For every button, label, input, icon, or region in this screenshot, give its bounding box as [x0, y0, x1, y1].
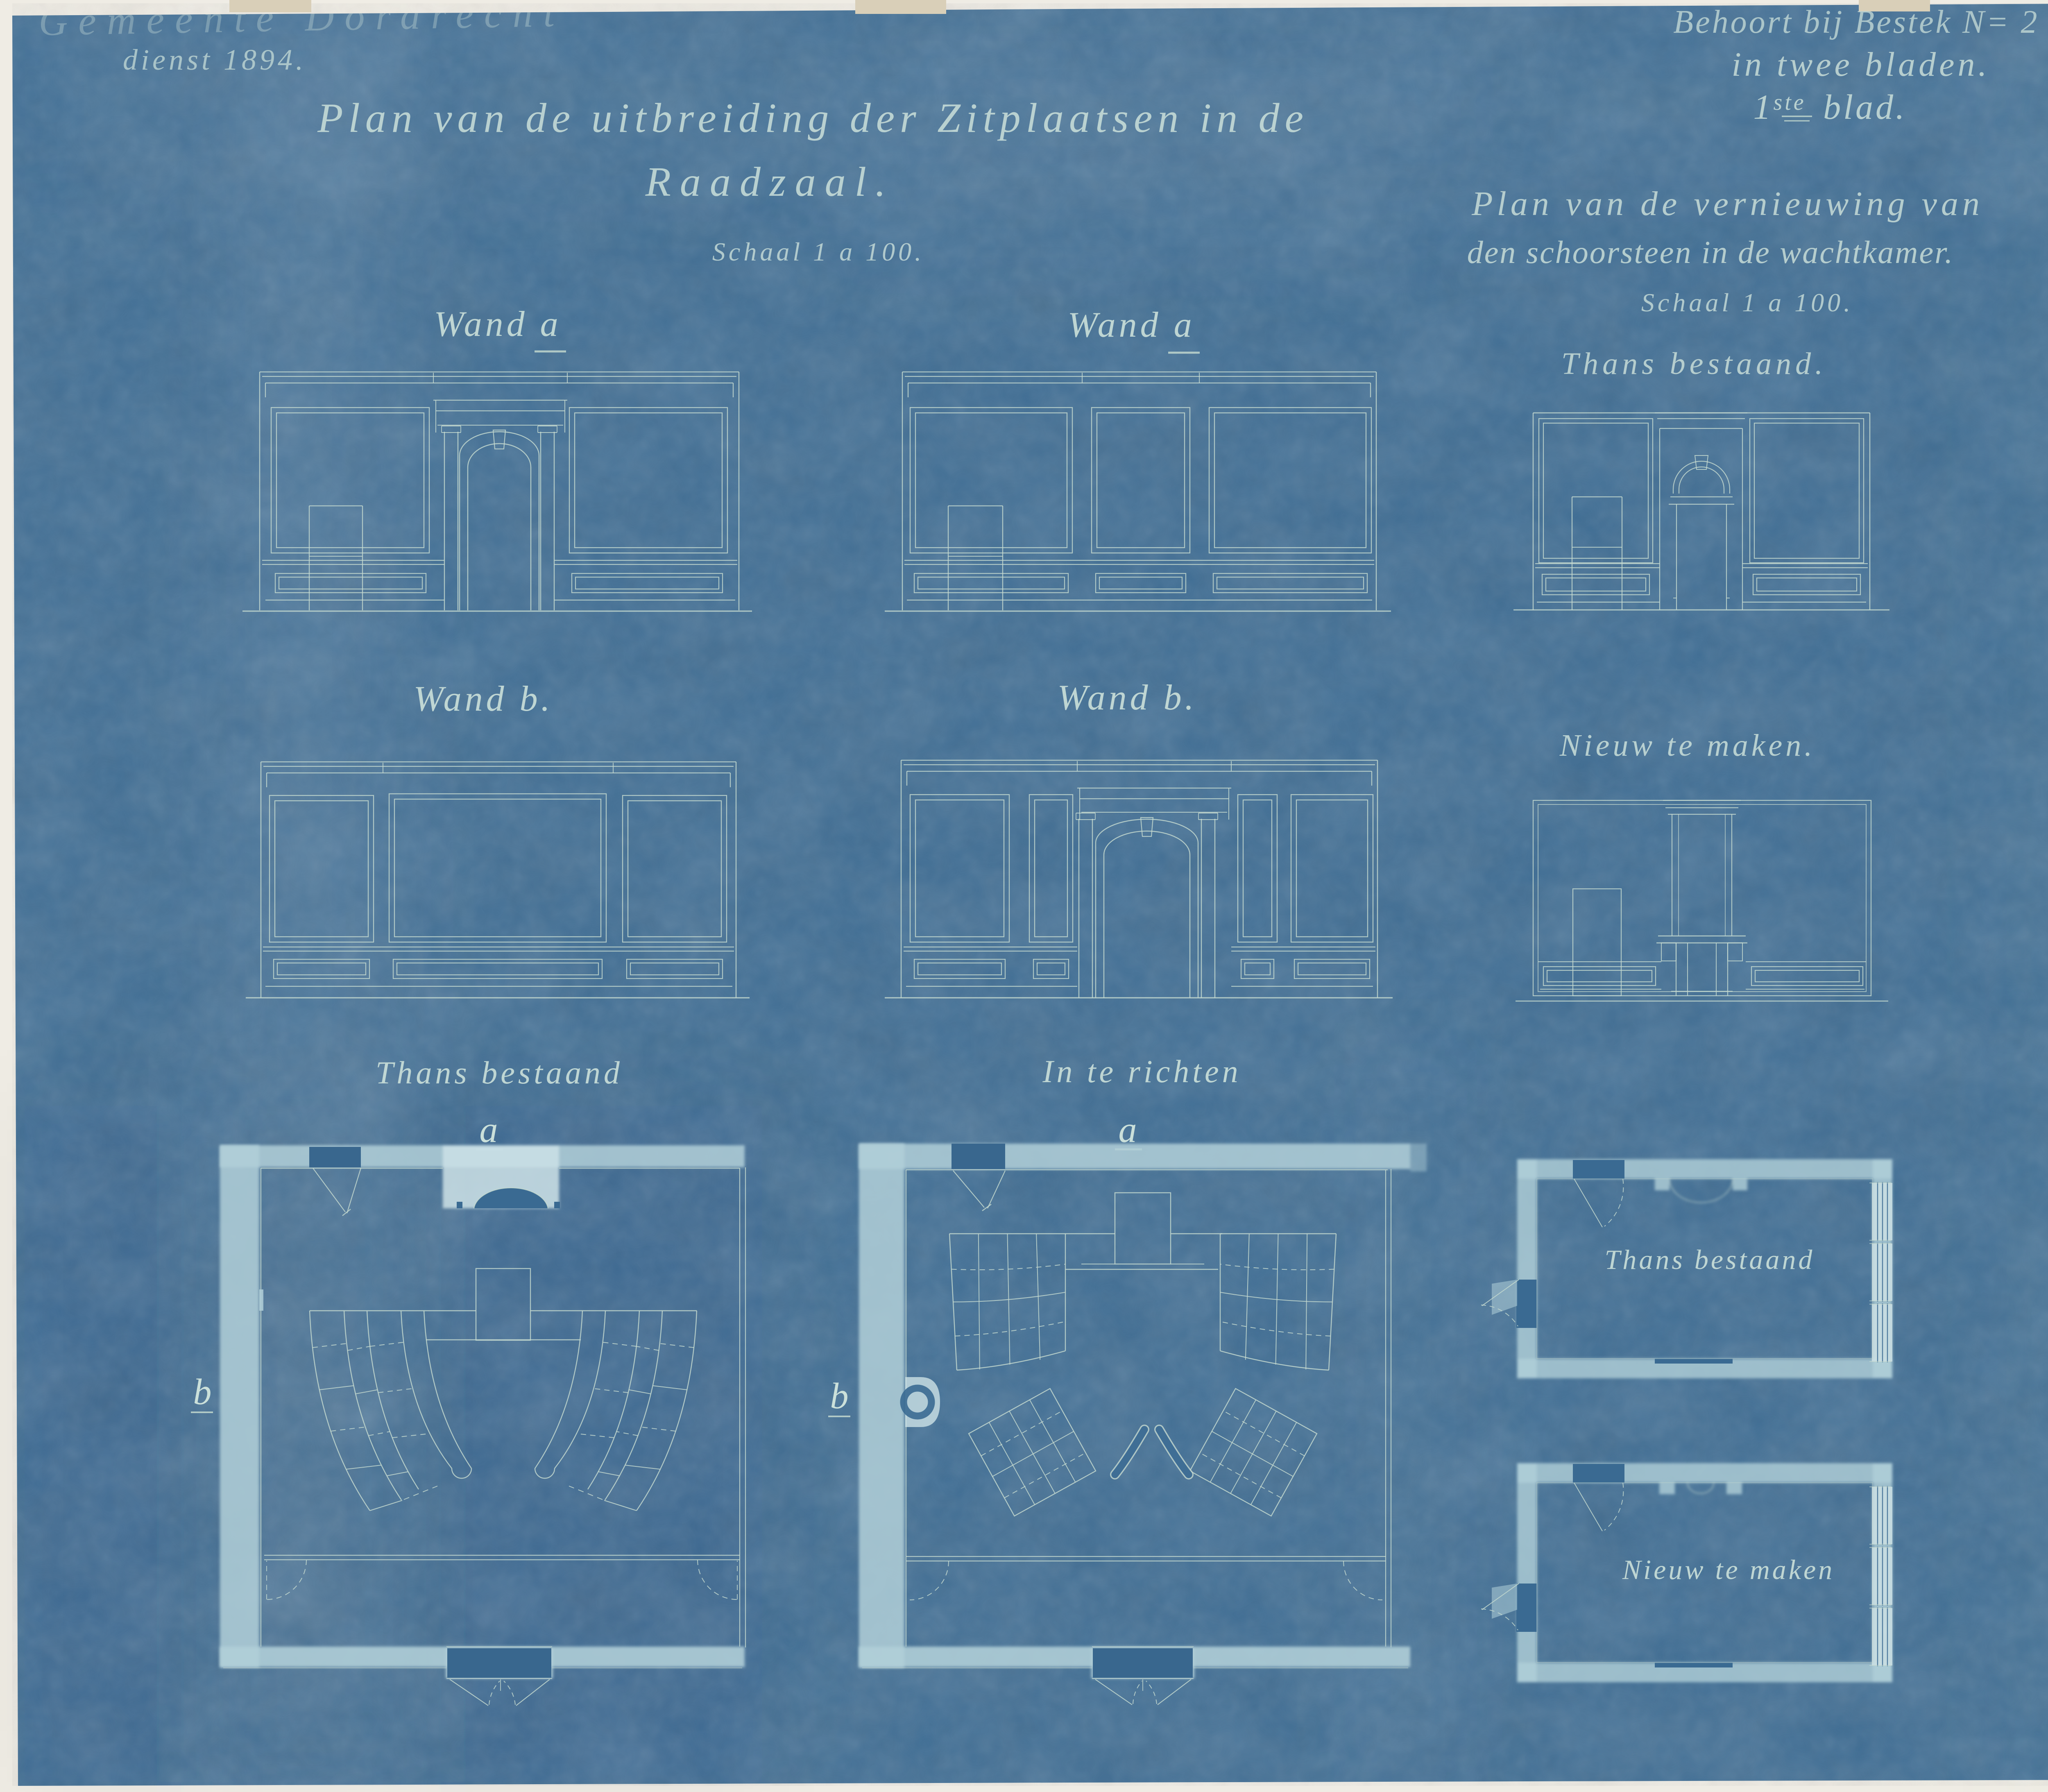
- svg-text:a: a: [480, 1110, 498, 1150]
- svg-text:Raadzaal.: Raadzaal.: [645, 159, 895, 205]
- svg-text:Thans bestaand: Thans bestaand: [1605, 1244, 1815, 1275]
- svg-text:b: b: [830, 1376, 849, 1416]
- svg-text:Schaal 1 a 100.: Schaal 1 a 100.: [1641, 288, 1853, 317]
- svg-text:Nieuw te maken.: Nieuw te maken.: [1559, 728, 1815, 763]
- svg-text:Thans bestaand: Thans bestaand: [376, 1055, 623, 1090]
- svg-text:den schoorsteen in de wachtkam: den schoorsteen in de wachtkamer.: [1467, 234, 1954, 270]
- svg-text:Nieuw te maken: Nieuw te maken: [1622, 1554, 1835, 1585]
- svg-text:b: b: [193, 1372, 212, 1412]
- svg-text:in twee bladen.: in twee bladen.: [1732, 45, 1990, 84]
- svg-text:Plan van de uitbreiding der Zi: Plan van de uitbreiding der Zitplaatsen …: [317, 95, 1309, 141]
- svg-text:Schaal 1 a 100.: Schaal 1 a 100.: [712, 237, 924, 266]
- svg-text:Wand b.: Wand b.: [1057, 678, 1197, 718]
- svg-text:dienst 1894.: dienst 1894.: [123, 43, 306, 76]
- svg-text:Behoort bij Bestek N= 2 79/2.: Behoort bij Bestek N= 2 79/2.: [1673, 4, 2048, 40]
- svg-text:In te richten: In te richten: [1042, 1053, 1241, 1089]
- svg-text:Wand a: Wand a: [1067, 305, 1195, 345]
- svg-text:Plan van de vernieuwing van: Plan van de vernieuwing van: [1471, 185, 1984, 223]
- svg-text:Wand b.: Wand b.: [413, 679, 553, 719]
- svg-text:Thans bestaand.: Thans bestaand.: [1561, 347, 1827, 381]
- svg-text:Wand a: Wand a: [434, 304, 561, 344]
